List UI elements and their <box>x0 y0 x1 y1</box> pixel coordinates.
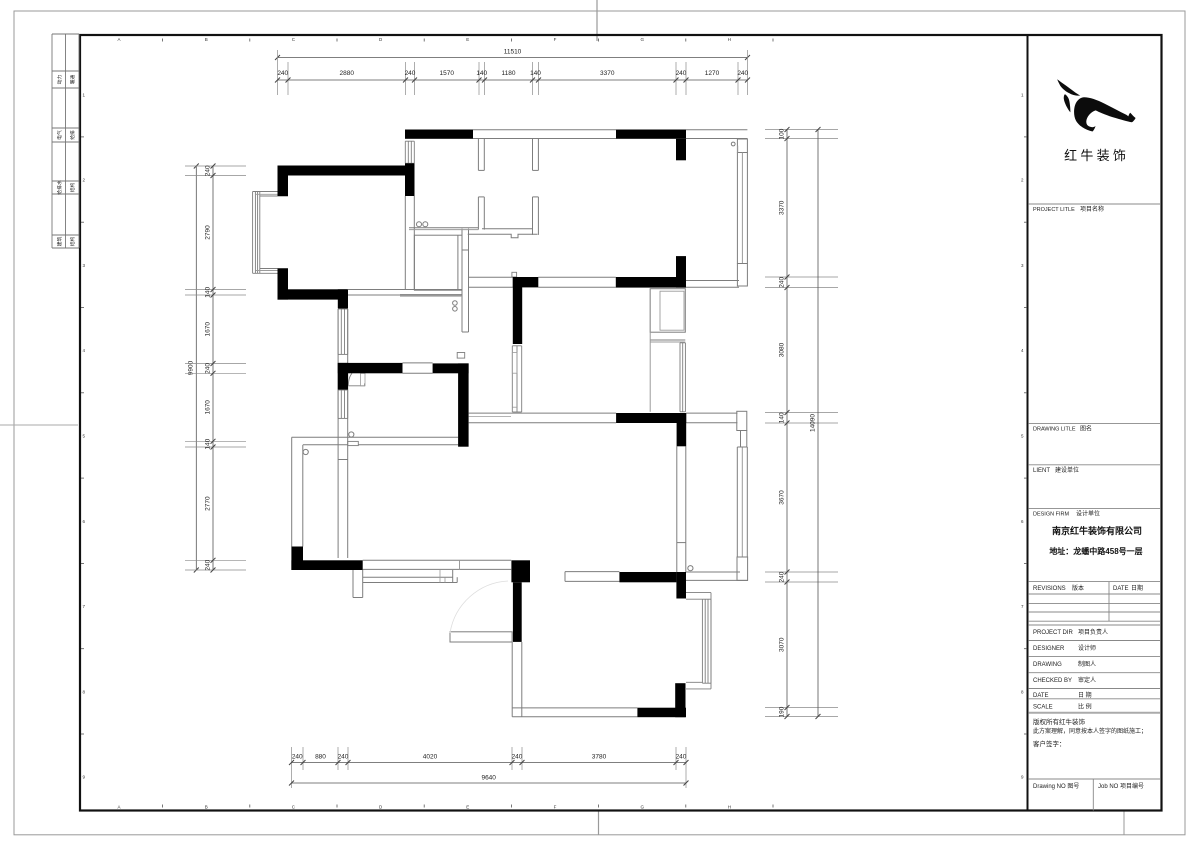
svg-text:日期: 日期 <box>1131 584 1143 592</box>
svg-text:DESIGN FIRM: DESIGN FIRM <box>1033 512 1069 518</box>
svg-text:9640: 9640 <box>481 775 496 782</box>
svg-text:电气: 电气 <box>56 130 63 140</box>
svg-text:建设单位: 建设单位 <box>1055 466 1079 474</box>
svg-text:项目名称: 项目名称 <box>1080 205 1104 213</box>
svg-text:G: G <box>640 37 644 42</box>
svg-text:动力: 动力 <box>56 75 63 85</box>
svg-text:3070: 3070 <box>779 637 786 652</box>
svg-text:1670: 1670 <box>205 400 212 415</box>
svg-text:比 例: 比 例 <box>1078 703 1092 711</box>
svg-text:140: 140 <box>530 70 541 77</box>
svg-text:CHECKED BY: CHECKED BY <box>1033 678 1072 684</box>
svg-text:G: G <box>640 805 644 810</box>
svg-text:F: F <box>554 37 557 42</box>
svg-text:140: 140 <box>476 70 487 77</box>
svg-text:240: 240 <box>737 70 748 77</box>
svg-text:240: 240 <box>676 754 687 761</box>
svg-text:190: 190 <box>779 706 786 717</box>
svg-text:红 牛 装 饰: 红 牛 装 饰 <box>1064 148 1126 163</box>
svg-text:给排水: 给排水 <box>56 180 63 195</box>
svg-text:3780: 3780 <box>592 754 607 761</box>
svg-text:H: H <box>728 805 731 810</box>
svg-text:客户签字：: 客户签字： <box>1033 739 1066 748</box>
svg-text:2770: 2770 <box>205 496 212 511</box>
svg-text:240: 240 <box>512 754 523 761</box>
svg-text:240: 240 <box>205 165 212 176</box>
svg-text:建筑: 建筑 <box>56 237 63 247</box>
svg-text:Drawing NO 图号: Drawing NO 图号 <box>1033 783 1079 790</box>
svg-text:A: A <box>117 37 120 42</box>
svg-text:3370: 3370 <box>600 70 615 77</box>
svg-text:版权所有红牛装饰: 版权所有红牛装饰 <box>1033 717 1086 726</box>
svg-text:F: F <box>554 805 557 810</box>
svg-text:240: 240 <box>205 559 212 570</box>
svg-text:此方案理解，同意按本人签字的图纸施工；: 此方案理解，同意按本人签字的图纸施工； <box>1033 727 1147 735</box>
svg-text:Job NO 项目编号: Job NO 项目编号 <box>1098 782 1144 790</box>
svg-text:结构: 结构 <box>69 237 76 247</box>
svg-text:3080: 3080 <box>779 342 786 357</box>
svg-text:H: H <box>728 37 731 42</box>
svg-text:1180: 1180 <box>502 70 516 77</box>
svg-text:1670: 1670 <box>205 322 212 337</box>
svg-text:南京红牛装饰有限公司: 南京红牛装饰有限公司 <box>1052 525 1142 536</box>
svg-text:3370: 3370 <box>779 200 786 215</box>
svg-text:14090: 14090 <box>810 414 817 432</box>
svg-text:给排: 给排 <box>69 130 76 140</box>
svg-text:日 期: 日 期 <box>1078 691 1092 699</box>
svg-text:图名: 图名 <box>1080 425 1092 433</box>
svg-text:240: 240 <box>405 70 416 77</box>
svg-text:3670: 3670 <box>779 490 786 505</box>
svg-text:DRAWING LITLE: DRAWING LITLE <box>1033 427 1076 433</box>
svg-text:SCALE: SCALE <box>1033 705 1053 711</box>
svg-text:PROJECT LITLE: PROJECT LITLE <box>1033 207 1075 213</box>
svg-text:240: 240 <box>292 754 303 761</box>
svg-text:地址：龙蟠中路458号一层: 地址：龙蟠中路458号一层 <box>1049 546 1142 556</box>
svg-text:11510: 11510 <box>504 49 522 56</box>
svg-text:2790: 2790 <box>205 225 212 240</box>
svg-text:240: 240 <box>779 276 786 287</box>
svg-text:暖通: 暖通 <box>69 75 76 85</box>
svg-text:4020: 4020 <box>423 754 438 761</box>
svg-text:240: 240 <box>338 754 349 761</box>
svg-text:B: B <box>205 37 208 42</box>
svg-text:DATE: DATE <box>1113 586 1129 592</box>
svg-text:LIENT: LIENT <box>1033 468 1050 474</box>
svg-text:A: A <box>117 805 120 810</box>
svg-text:880: 880 <box>315 754 326 761</box>
svg-text:1570: 1570 <box>440 70 455 77</box>
svg-text:140: 140 <box>205 438 212 449</box>
svg-text:240: 240 <box>779 571 786 582</box>
svg-text:制图人: 制图人 <box>1078 660 1096 668</box>
svg-text:审定人: 审定人 <box>1078 676 1096 684</box>
svg-text:设计单位: 设计单位 <box>1076 510 1100 518</box>
svg-text:240: 240 <box>277 70 288 77</box>
svg-text:结构: 结构 <box>69 183 76 193</box>
svg-text:1270: 1270 <box>705 70 720 77</box>
svg-text:版本: 版本 <box>1072 584 1084 592</box>
svg-text:E: E <box>466 37 469 42</box>
svg-text:DESIGNER: DESIGNER <box>1033 646 1065 652</box>
svg-text:240: 240 <box>676 70 687 77</box>
svg-text:2880: 2880 <box>340 70 355 77</box>
svg-text:B: B <box>205 805 208 810</box>
svg-text:DRAWING: DRAWING <box>1033 662 1062 668</box>
svg-text:设计师: 设计师 <box>1078 644 1096 652</box>
svg-text:100: 100 <box>779 128 786 139</box>
svg-text:PROJECT DIR: PROJECT DIR <box>1033 630 1074 636</box>
svg-text:240: 240 <box>205 363 212 374</box>
svg-text:项目负责人: 项目负责人 <box>1078 628 1108 636</box>
svg-text:DATE: DATE <box>1033 693 1049 699</box>
svg-text:140: 140 <box>779 412 786 423</box>
svg-text:E: E <box>466 805 469 810</box>
svg-text:140: 140 <box>205 286 212 297</box>
svg-text:REVISIONS: REVISIONS <box>1033 586 1066 592</box>
